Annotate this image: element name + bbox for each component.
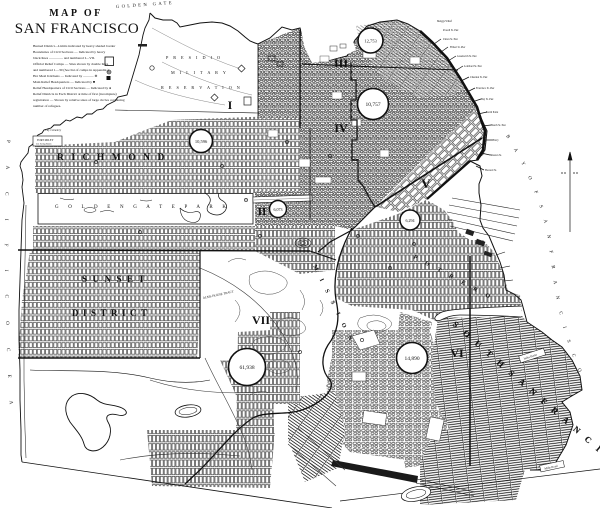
svg-text:Mission St.: Mission St. (490, 154, 502, 157)
svg-text:Main Relief Headquarters — Ind: Main Relief Headquarters — Indicated by … (33, 80, 95, 84)
svg-text:Lombard St. Pier: Lombard St. Pier (464, 65, 482, 68)
svg-text:SUNSET: SUNSET (82, 274, 150, 284)
svg-text:Hot Meal Kitchens — Indicated: Hot Meal Kitchens — Indicated by ——— ⊕ (33, 74, 98, 78)
svg-text:61,938: 61,938 (239, 365, 254, 371)
svg-text:DISTRICT: DISTRICT (72, 308, 152, 318)
svg-text:Boundaries of Civil Sections —: Boundaries of Civil Sections — Indicated… (33, 50, 105, 54)
svg-text:RICHMOND: RICHMOND (57, 153, 172, 163)
svg-text:Greenwich St. Pier: Greenwich St. Pier (457, 55, 477, 58)
svg-text:IV: IV (334, 121, 348, 135)
svg-text:Francisco St. Pier: Francisco St. Pier (476, 87, 495, 90)
svg-text:FORT MILEY: FORT MILEY (37, 139, 54, 142)
svg-text:Relief Headquarters of Civil S: Relief Headquarters of Civil Sections — … (33, 86, 111, 90)
svg-text:Bay St. Pier: Bay St. Pier (481, 98, 494, 101)
svg-text:VII: VII (252, 313, 270, 327)
svg-text:number of refugees.: number of refugees. (33, 104, 61, 108)
svg-text:Burned District—Limits indicat: Burned District—Limits indicated by heav… (33, 44, 116, 48)
svg-text:Union St. Pier: Union St. Pier (443, 38, 458, 41)
svg-text:14,890: 14,890 (404, 356, 419, 362)
svg-text:10,757: 10,757 (365, 102, 380, 108)
svg-text:G O L D E N G A T E P A R K: G O L D E N G A T E P A R K (55, 205, 230, 210)
svg-text:II: II (258, 206, 267, 218)
svg-text:Howard St.: Howard St. (485, 169, 497, 172)
svg-text:P R E S I D I O: P R E S I D I O (166, 55, 222, 60)
svg-text:North Point: North Point (486, 111, 498, 114)
svg-text:Relief Districts in Each Distr: Relief Districts in Each District at tim… (33, 92, 118, 96)
svg-text:Life Saving Station: Life Saving Station (36, 143, 52, 146)
svg-text:City Cemetery: City Cemetery (45, 129, 62, 132)
svg-text:MAP OF: MAP OF (49, 8, 103, 19)
svg-text:R E S E R V A T I O N: R E S E R V A T I O N (161, 85, 242, 90)
svg-text:Meiggs Wharf: Meiggs Wharf (437, 20, 452, 23)
svg-text:and numbered 1—30 (See list o: and numbered 1—30 (See list of camps in … (33, 68, 109, 72)
svg-text:I: I (228, 98, 233, 112)
svg-text:Ferry: Ferry (493, 139, 499, 142)
svg-text:Chestnut St. Pier: Chestnut St. Pier (470, 76, 488, 79)
svg-text:V: V (421, 176, 431, 191)
svg-text:registration — Shown by relati: registration — Shown by relative sizes o… (33, 98, 125, 102)
svg-text:III: III (334, 56, 348, 70)
svg-text:SAN FRANCISCO: SAN FRANCISCO (15, 21, 139, 37)
svg-text:Filbert St. Pier: Filbert St. Pier (450, 46, 465, 49)
svg-text:Official Relief Camps — Sites: Official Relief Camps — Sites shown by d… (33, 62, 109, 66)
svg-text:M I L I T A R Y: M I L I T A R Y (171, 70, 228, 75)
svg-text:VI: VI (450, 346, 464, 360)
svg-text:Beach St. Pier: Beach St. Pier (491, 124, 506, 127)
svg-text:Powell St. Pier: Powell St. Pier (443, 29, 459, 32)
svg-text:black lines ———— and numbered: black lines ———— and numbered I—VII. (33, 56, 95, 60)
